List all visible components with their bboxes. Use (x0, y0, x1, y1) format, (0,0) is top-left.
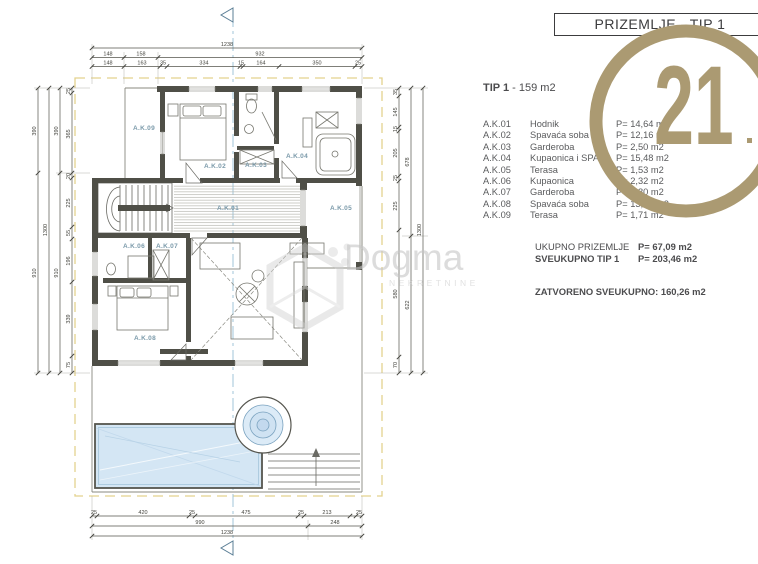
terrace-railing (360, 186, 362, 268)
dim-label: 148 (103, 61, 112, 67)
legend-row: A.K.01 Hodnik P= 14,64 m2 (483, 119, 703, 130)
closed-total: ZATVORENO SVEUKUPNO: 160,26 m2 (535, 286, 706, 297)
dim-label: 910 (54, 268, 60, 277)
title-block: PRIZEMLJE - TIP 1 (554, 13, 758, 36)
dimension-lines (38, 48, 423, 536)
room-label: A.K.06 (123, 243, 145, 250)
totals: UKUPNO PRIZEMLJE P= 67,09 m2 SVEUKUPNO T… (535, 241, 735, 265)
dim-label: 25 (298, 510, 304, 516)
pool-round-steps (235, 397, 291, 453)
dim-label: 25 (356, 510, 362, 516)
dim-label: 390 (32, 126, 38, 135)
section-marker-icon (221, 8, 233, 22)
room-label: A.K.08 (134, 335, 156, 342)
watermark-logo-icon (270, 244, 351, 328)
room-label: A.K.02 (204, 163, 226, 170)
type-heading-bold: TIP 1 (483, 82, 509, 94)
dim-label: 148 (103, 52, 112, 58)
dim-label: 196 (66, 256, 72, 265)
architectural-sheet: 1238 148 158 932 148 163 35 334 15 164 3… (0, 0, 758, 564)
watermark: Dogma NEKRETNINE (0, 0, 758, 564)
legend-row: A.K.02 Spavaća soba P= 12,16 m2 (483, 130, 703, 141)
sheet-title: PRIZEMLJE - TIP 1 (595, 16, 726, 32)
dim-label: 35 (393, 89, 399, 95)
dimension-ticks (36, 46, 425, 538)
dim-label: 75 (66, 362, 72, 368)
dim-label: 25 (189, 510, 195, 516)
dim-label: 25 (355, 61, 361, 67)
legend-row: A.K.06 Kupaonica P= 2,32 m2 (483, 176, 703, 187)
room-labels: A.K.01 A.K.02 A.K.03 A.K.04 A.K.05 A.K.0… (123, 125, 352, 342)
extension-lines (34, 44, 428, 540)
dim-label: 70 (393, 362, 399, 368)
dim-label: 20 (66, 173, 72, 179)
dim-label: 248 (330, 520, 339, 526)
dim-label: 15 (393, 126, 399, 132)
total-row: UKUPNO PRIZEMLJE P= 67,09 m2 (535, 241, 735, 253)
hallway-hatch (174, 184, 300, 232)
dimension-labels: 1238 148 158 932 148 163 35 334 15 164 3… (32, 42, 423, 536)
furniture (107, 94, 356, 360)
dim-label: 163 (137, 61, 146, 67)
dim-label: 205 (393, 148, 399, 157)
door-swings (171, 161, 297, 360)
legend-row: A.K.03 Garderoba P= 2,50 m2 (483, 142, 703, 153)
dim-label: 25 (91, 510, 97, 516)
dim-label: 1300 (417, 224, 423, 236)
dim-label: 1238 (221, 42, 233, 48)
century-21-seal: 21 (0, 0, 758, 564)
walls (92, 86, 362, 366)
dim-label: 35 (160, 61, 166, 67)
total-row: SVEUKUPNO TIP 1 P= 203,46 m2 (535, 253, 735, 265)
dim-label: 932 (255, 52, 264, 58)
dim-label: 334 (199, 61, 208, 67)
dim-label: 164 (256, 61, 265, 67)
dim-label: 225 (66, 198, 72, 207)
type-heading-rest: - 159 m2 (509, 82, 555, 94)
dim-label: 1238 (221, 530, 233, 536)
dim-label: 475 (241, 510, 250, 516)
room-label: A.K.09 (133, 125, 155, 132)
legend-row: A.K.04 Kupaonica i SPA P= 15,48 m2 (483, 153, 703, 164)
legend-row: A.K.08 Spavaća soba P= 13,97 m2 (483, 199, 703, 210)
room-label: A.K.05 (330, 205, 352, 212)
dim-label: 910 (32, 268, 38, 277)
dim-label: 350 (312, 61, 321, 67)
room-legend: A.K.01 Hodnik P= 14,64 m2 A.K.02 Spavaća… (483, 119, 703, 222)
dim-label: 158 (136, 52, 145, 58)
seal-mark-icon (747, 138, 752, 143)
floor-plan: 1238 148 158 932 148 163 35 334 15 164 3… (0, 0, 758, 564)
dim-label: 25 (66, 88, 72, 94)
room-label: A.K.01 (217, 205, 239, 212)
dim-label: 339 (66, 314, 72, 323)
parcel-boundary (75, 78, 382, 496)
watermark-tagline: NEKRETNINE (389, 278, 479, 288)
dim-label: 678 (405, 157, 411, 166)
pool (95, 424, 262, 488)
room-label: A.K.07 (156, 243, 178, 250)
dim-label: 225 (393, 201, 399, 210)
type-heading: TIP 1 - 159 m2 (483, 82, 556, 94)
legend-row: A.K.09 Terasa P= 1,71 m2 (483, 210, 703, 221)
dim-label: 25 (393, 175, 399, 181)
dim-label: 213 (322, 510, 331, 516)
dim-label: 990 (195, 520, 204, 526)
dim-label: 390 (54, 126, 60, 135)
dim-label: 55 (66, 230, 72, 236)
legend-row: A.K.05 Terasa P= 1,53 m2 (483, 165, 703, 176)
dim-label: 1300 (43, 224, 49, 236)
dim-label: 420 (138, 510, 147, 516)
dim-label: 365 (66, 129, 72, 138)
outdoor-steps (268, 448, 360, 489)
staircase (98, 183, 173, 233)
dim-label: 15 (238, 61, 244, 67)
terrace-boundary (92, 88, 362, 492)
room-label: A.K.04 (286, 153, 308, 160)
dim-label: 622 (405, 300, 411, 309)
legend-row: A.K.07 Garderoba P= 2,80 m2 (483, 187, 703, 198)
section-marker-icon (221, 541, 233, 555)
room-label: A.K.03 (245, 162, 267, 169)
watermark-name: Dogma (344, 237, 464, 278)
windows (93, 87, 361, 365)
dim-label: 145 (393, 107, 399, 116)
dim-label: 580 (393, 289, 399, 298)
